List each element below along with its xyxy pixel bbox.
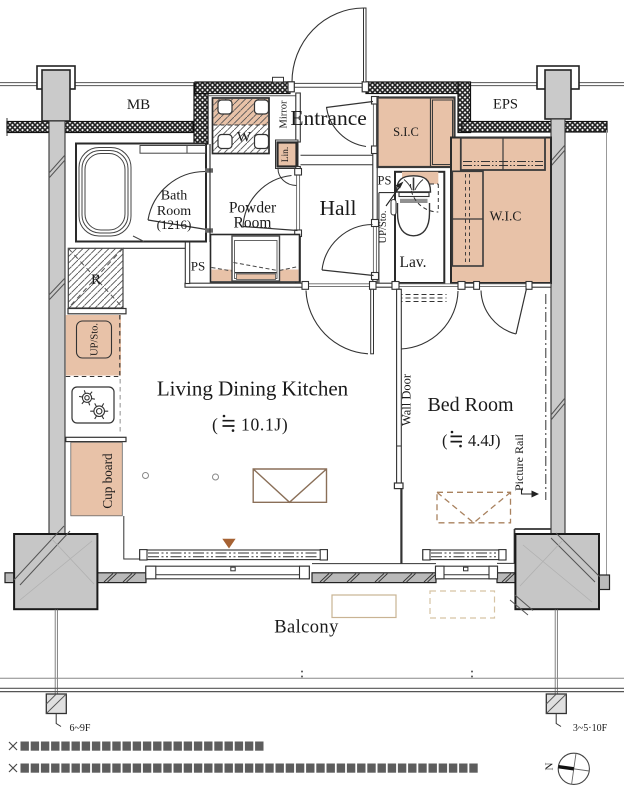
svg-text:Mirror: Mirror: [279, 100, 290, 128]
svg-text:(: (: [442, 431, 448, 450]
svg-text:Hall: Hall: [319, 196, 356, 220]
svg-text:N: N: [544, 762, 556, 770]
svg-text:Bed Room: Bed Room: [427, 394, 514, 416]
svg-text:6~9F: 6~9F: [70, 723, 91, 734]
svg-text:(1216): (1216): [157, 217, 192, 232]
svg-text:EPS: EPS: [493, 97, 518, 113]
svg-text:10.1J): 10.1J): [241, 415, 288, 435]
svg-text:R: R: [91, 272, 101, 288]
svg-text:PS: PS: [378, 174, 392, 188]
svg-text:(: (: [212, 415, 218, 435]
svg-text:Cup board: Cup board: [100, 453, 115, 509]
svg-text:Lin.: Lin.: [281, 147, 291, 163]
svg-text:UP/Sto.: UP/Sto.: [90, 323, 101, 356]
svg-text:UP/Sto.: UP/Sto.: [378, 211, 389, 244]
svg-text:Room: Room: [234, 215, 272, 232]
svg-text:Wall Door: Wall Door: [400, 373, 414, 426]
svg-text:MB: MB: [127, 97, 150, 113]
svg-text:Entrance: Entrance: [290, 106, 366, 130]
svg-text:4.4J): 4.4J): [468, 431, 501, 450]
svg-text:Lav.: Lav.: [400, 254, 427, 271]
svg-text:Living Dining Kitchen: Living Dining Kitchen: [157, 377, 349, 401]
svg-text:W: W: [237, 130, 252, 146]
svg-text:PS: PS: [191, 259, 205, 274]
svg-text:Picture Rail: Picture Rail: [512, 433, 526, 491]
svg-text:Bath: Bath: [161, 189, 187, 204]
svg-text:Balcony: Balcony: [274, 618, 339, 638]
svg-text:3~5·10F: 3~5·10F: [573, 723, 608, 734]
svg-text:S.I.C: S.I.C: [393, 125, 419, 139]
svg-text:W.I.C: W.I.C: [490, 209, 522, 224]
